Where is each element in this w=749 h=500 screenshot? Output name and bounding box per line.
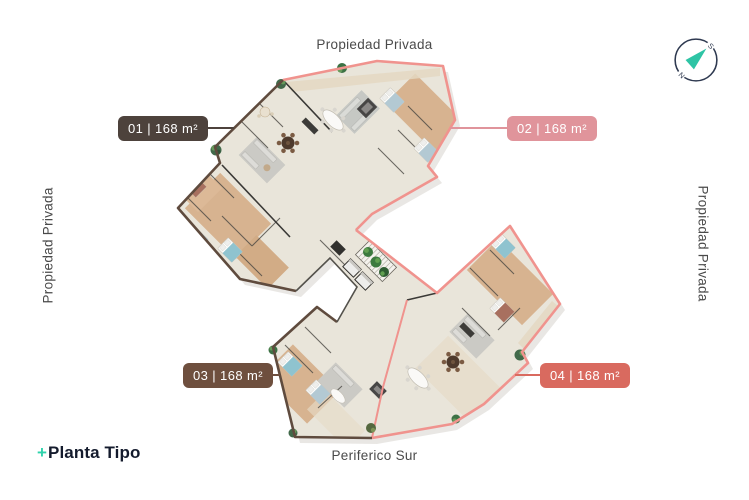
unit-badge-03[interactable]: 03 | 168 m² [183,363,273,388]
logo-text: Planta Tipo [48,443,140,462]
unit-badge-02[interactable]: 02 | 168 m² [507,116,597,141]
unit-badge-01[interactable]: 01 | 168 m² [118,116,208,141]
compass-needle-icon [686,49,707,70]
floor-plan [0,0,749,500]
logo-plus-icon: + [37,443,47,462]
compass: S N [672,36,720,84]
planta-tipo-page: Propiedad Privada Propiedad Privada Prop… [0,0,749,500]
brand-logo: +Planta Tipo [37,443,140,463]
unit-badge-04[interactable]: 04 | 168 m² [540,363,630,388]
